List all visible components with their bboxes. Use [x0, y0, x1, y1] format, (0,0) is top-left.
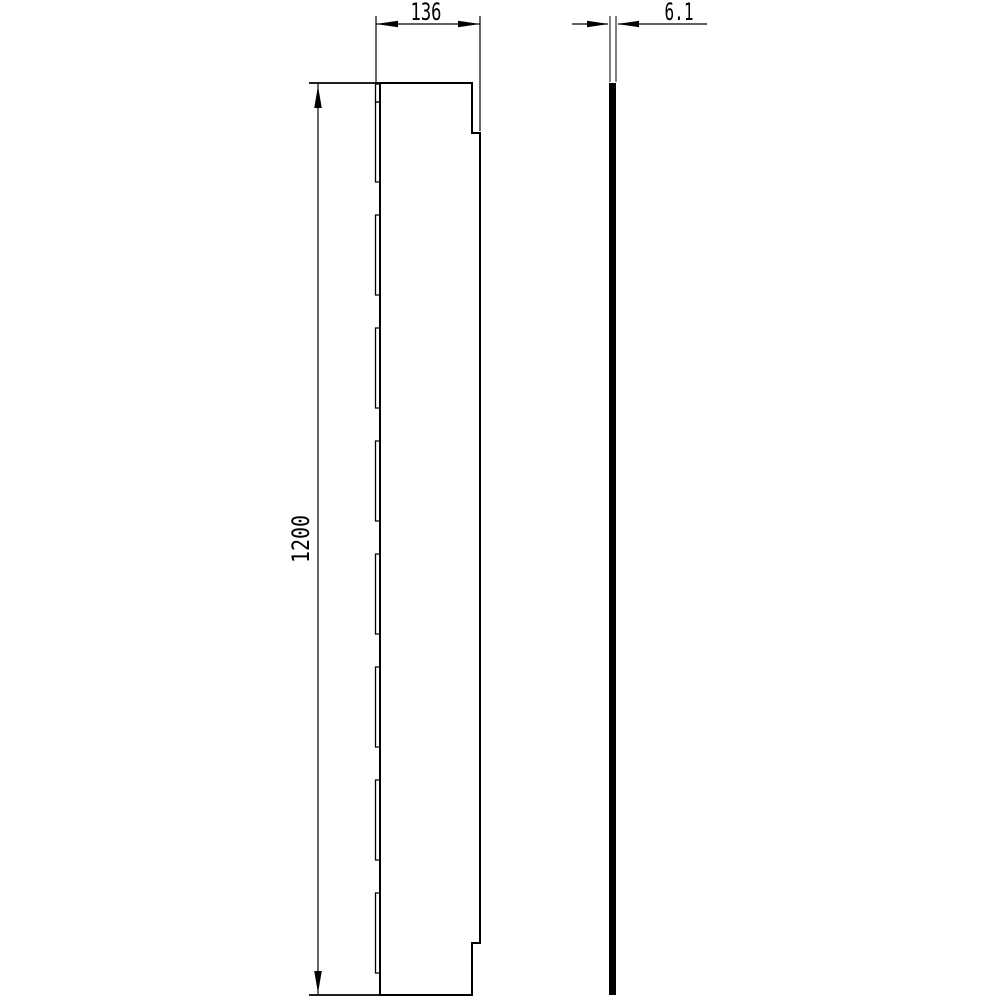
- arrowhead-pointing-right: [587, 21, 609, 27]
- technical-drawing: 136 1200 6.1: [0, 0, 1000, 1000]
- dimension-height-value: 1200: [287, 515, 315, 563]
- dimension-thickness-value: 6.1: [665, 0, 694, 26]
- front-view: [376, 83, 481, 995]
- dimension-width-value: 136: [411, 0, 442, 26]
- dimension-height: 1200: [287, 83, 380, 995]
- arrowhead-down: [314, 971, 322, 993]
- front-view-outline: [380, 83, 480, 995]
- side-view: [609, 83, 616, 995]
- dimension-thickness: 6.1: [572, 0, 707, 82]
- arrowhead-left: [376, 21, 398, 27]
- side-view-profile: [609, 83, 616, 995]
- arrowhead-up: [314, 86, 322, 108]
- dimension-width: 136: [376, 0, 480, 131]
- arrowhead-right: [458, 21, 480, 27]
- drawing-canvas: 136 1200 6.1: [0, 0, 1000, 1000]
- arrowhead-pointing-left: [617, 21, 639, 27]
